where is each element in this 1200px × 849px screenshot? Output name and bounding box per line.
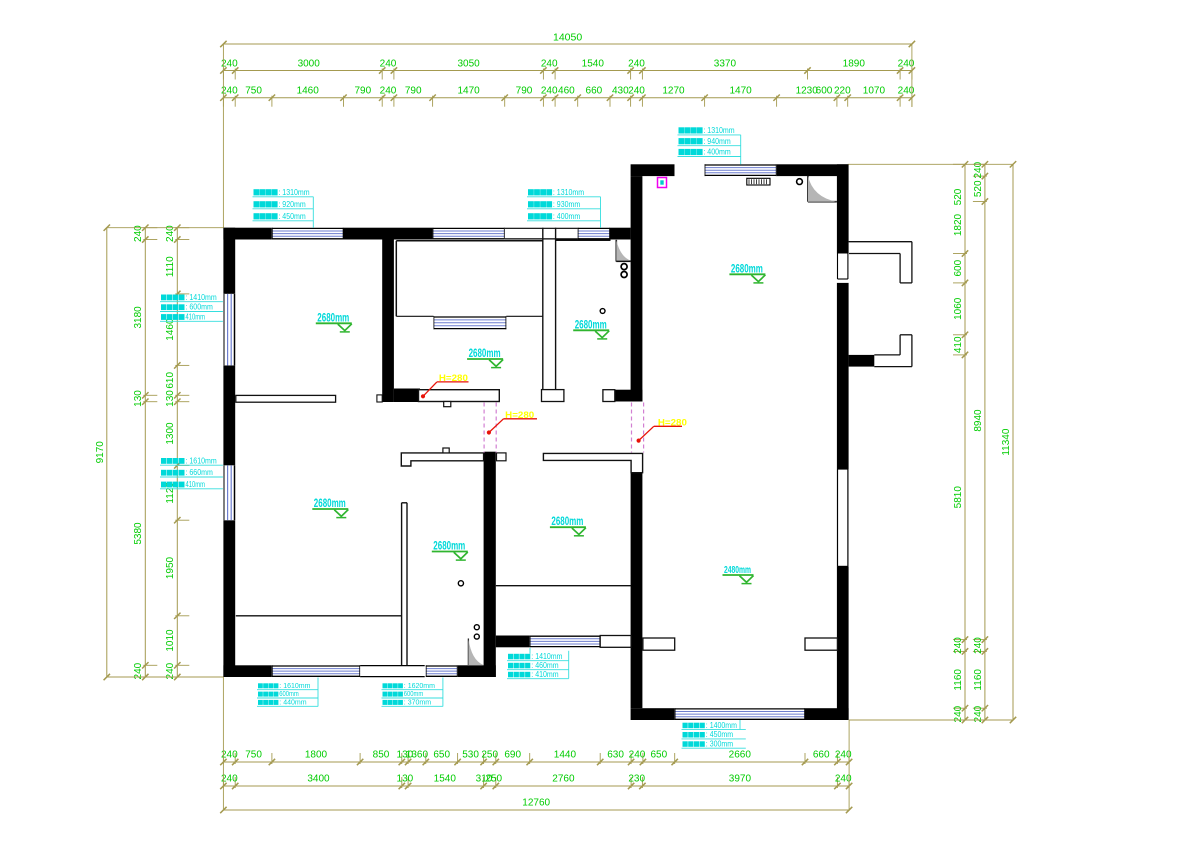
svg-text:: 450mm: : 450mm xyxy=(278,211,305,221)
svg-text:1820: 1820 xyxy=(953,213,964,236)
svg-text:430: 430 xyxy=(612,86,629,97)
svg-text:2680mm: 2680mm xyxy=(575,317,607,331)
svg-text:240: 240 xyxy=(541,59,558,70)
svg-text:3000: 3000 xyxy=(298,59,321,70)
svg-text:790: 790 xyxy=(405,86,422,97)
svg-text:410mm: 410mm xyxy=(186,313,206,322)
svg-text:: 930mm: : 930mm xyxy=(553,199,580,209)
svg-text:240: 240 xyxy=(953,637,964,654)
svg-text:650: 650 xyxy=(433,750,450,761)
svg-text:: 400mm: : 400mm xyxy=(553,211,580,221)
svg-text:: 410mm: : 410mm xyxy=(531,670,559,679)
svg-text:1470: 1470 xyxy=(457,86,480,97)
svg-text:790: 790 xyxy=(354,86,371,97)
svg-text:520: 520 xyxy=(953,188,964,205)
svg-text:2660: 2660 xyxy=(729,750,752,761)
svg-text:690: 690 xyxy=(504,750,521,761)
svg-text:3970: 3970 xyxy=(729,774,752,785)
svg-text:12760: 12760 xyxy=(522,798,550,809)
svg-text:11340: 11340 xyxy=(1001,428,1012,456)
svg-text:: 600mm: : 600mm xyxy=(186,303,214,312)
svg-text:2680mm: 2680mm xyxy=(314,496,346,510)
svg-text:790: 790 xyxy=(516,86,533,97)
svg-text:630: 630 xyxy=(607,750,624,761)
svg-text:220: 220 xyxy=(834,86,851,97)
svg-text:240: 240 xyxy=(380,59,397,70)
svg-text:1160: 1160 xyxy=(973,669,984,691)
svg-text:: 1410mm: : 1410mm xyxy=(531,652,562,661)
svg-text:2760: 2760 xyxy=(552,774,575,785)
svg-text:610: 610 xyxy=(165,372,176,389)
svg-text:1300: 1300 xyxy=(165,422,176,445)
svg-text:240: 240 xyxy=(973,637,984,654)
svg-text:5810: 5810 xyxy=(953,486,964,509)
svg-text:1470: 1470 xyxy=(729,86,752,97)
svg-text:230: 230 xyxy=(628,774,645,785)
svg-text:: 370mm: : 370mm xyxy=(404,698,431,707)
svg-text:: 660mm: : 660mm xyxy=(186,468,214,477)
svg-text:850: 850 xyxy=(373,750,390,761)
svg-text:650: 650 xyxy=(650,750,667,761)
svg-text:1360: 1360 xyxy=(406,750,429,761)
svg-text:14050: 14050 xyxy=(553,32,582,44)
svg-text:410mm: 410mm xyxy=(186,480,206,489)
svg-text:: 1310mm: : 1310mm xyxy=(278,187,309,197)
svg-text:2680mm: 2680mm xyxy=(731,261,763,275)
svg-text:1540: 1540 xyxy=(434,774,457,785)
svg-text:3400: 3400 xyxy=(307,774,330,785)
svg-text:9170: 9170 xyxy=(95,441,106,464)
svg-text:: 1310mm: : 1310mm xyxy=(703,125,734,135)
svg-text:3180: 3180 xyxy=(133,306,144,329)
svg-text:2680mm: 2680mm xyxy=(551,514,583,528)
svg-text:1890: 1890 xyxy=(843,59,866,70)
svg-text:250: 250 xyxy=(481,750,498,761)
svg-text:: 1410mm: : 1410mm xyxy=(186,293,217,302)
svg-text:410: 410 xyxy=(953,336,964,353)
svg-text:750: 750 xyxy=(245,86,262,97)
svg-text:: 940mm: : 940mm xyxy=(703,136,730,146)
svg-text:1460: 1460 xyxy=(297,86,320,97)
svg-text:130: 130 xyxy=(397,774,414,785)
svg-text:600: 600 xyxy=(816,86,833,97)
svg-text:530: 530 xyxy=(462,750,479,761)
svg-text:520: 520 xyxy=(973,180,984,197)
svg-text:3050: 3050 xyxy=(457,59,480,70)
svg-text:240: 240 xyxy=(541,86,558,97)
svg-text:: 460mm: : 460mm xyxy=(531,661,559,670)
svg-text:2680mm: 2680mm xyxy=(469,346,501,360)
svg-text:240: 240 xyxy=(628,59,645,70)
svg-text:: 1400mm: : 1400mm xyxy=(706,721,737,730)
svg-text:130: 130 xyxy=(133,390,144,407)
svg-text:8940: 8940 xyxy=(973,409,984,432)
svg-text:: 400mm: : 400mm xyxy=(703,147,730,157)
svg-text:600: 600 xyxy=(953,259,964,276)
svg-text:: 1310mm: : 1310mm xyxy=(553,187,584,197)
svg-text:250: 250 xyxy=(485,774,502,785)
svg-text:660: 660 xyxy=(813,750,830,761)
svg-text:2680mm: 2680mm xyxy=(317,310,349,324)
svg-text:1540: 1540 xyxy=(582,59,605,70)
svg-text:1800: 1800 xyxy=(305,750,328,761)
svg-text:1110: 1110 xyxy=(165,256,176,277)
svg-text:1440: 1440 xyxy=(554,750,577,761)
svg-text:: 1610mm: : 1610mm xyxy=(186,456,217,465)
svg-text:1070: 1070 xyxy=(863,86,886,97)
svg-text:1950: 1950 xyxy=(165,556,176,579)
svg-text:1270: 1270 xyxy=(662,86,685,97)
svg-text:5380: 5380 xyxy=(133,522,144,545)
svg-text:130: 130 xyxy=(165,390,176,407)
svg-text:460: 460 xyxy=(558,86,575,97)
svg-text:: 450mm: : 450mm xyxy=(706,730,734,739)
svg-text:: 300mm: : 300mm xyxy=(706,739,734,748)
svg-text:: 440mm: : 440mm xyxy=(279,698,306,707)
svg-text:2680mm: 2680mm xyxy=(433,539,465,553)
svg-text:1010: 1010 xyxy=(165,629,176,652)
svg-text:: 920mm: : 920mm xyxy=(278,199,305,209)
svg-text:750: 750 xyxy=(245,750,262,761)
svg-text:240: 240 xyxy=(380,86,397,97)
svg-text:1060: 1060 xyxy=(953,297,964,320)
svg-text:3370: 3370 xyxy=(714,59,737,70)
svg-text:240: 240 xyxy=(629,750,646,761)
svg-text:1160: 1160 xyxy=(953,669,964,691)
svg-text:240: 240 xyxy=(628,86,645,97)
svg-text:660: 660 xyxy=(586,86,603,97)
